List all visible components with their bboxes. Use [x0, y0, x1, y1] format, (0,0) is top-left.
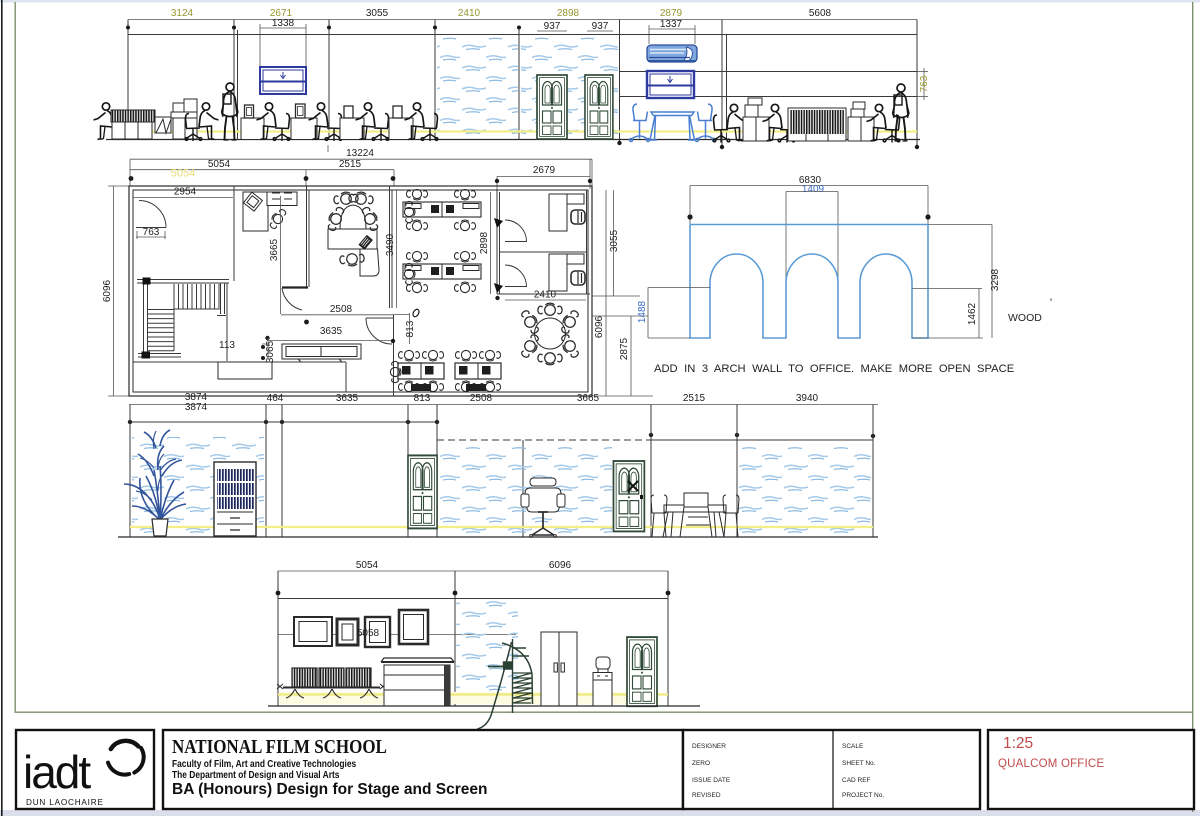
svg-text:3055: 3055: [366, 8, 389, 19]
svg-text:813: 813: [405, 320, 416, 337]
svg-text:SHEET No.: SHEET No.: [842, 760, 876, 767]
svg-text:3635: 3635: [320, 326, 343, 337]
svg-text:NATIONAL FILM SCHOOL: NATIONAL FILM SCHOOL: [172, 736, 387, 759]
svg-text:3065: 3065: [265, 340, 276, 363]
svg-text:1:25: 1:25: [1003, 735, 1033, 752]
svg-text:3298: 3298: [990, 268, 1001, 291]
svg-text:113: 113: [219, 340, 235, 351]
svg-text:3055: 3055: [609, 229, 620, 252]
svg-text:2410: 2410: [458, 8, 481, 19]
svg-text:2875: 2875: [619, 337, 630, 360]
svg-text:2508: 2508: [330, 304, 353, 315]
svg-text:3490: 3490: [385, 233, 396, 256]
svg-text:1338: 1338: [272, 18, 295, 29]
svg-text:5054: 5054: [356, 560, 379, 571]
svg-text:763: 763: [143, 227, 160, 238]
svg-text:5054: 5054: [171, 168, 195, 180]
svg-text:1337: 1337: [660, 19, 683, 30]
svg-text:5608: 5608: [809, 8, 832, 19]
svg-text:CAD REF: CAD REF: [842, 777, 871, 784]
svg-text:5054: 5054: [208, 159, 231, 170]
svg-text:1409: 1409: [802, 184, 825, 195]
svg-text:iadt: iadt: [23, 746, 91, 798]
svg-text:1488: 1488: [637, 300, 648, 323]
svg-text:3665: 3665: [577, 393, 600, 404]
svg-text:SCALE: SCALE: [842, 743, 864, 750]
svg-text:937: 937: [592, 21, 609, 32]
svg-text:5058: 5058: [357, 628, 380, 639]
svg-text:The Department of Design and V: The Department of Design and Visual Arts: [172, 769, 339, 781]
svg-text:6096: 6096: [549, 560, 572, 571]
svg-text:763: 763: [919, 75, 930, 92]
svg-text:QUALCOM OFFICE: QUALCOM OFFICE: [998, 758, 1104, 770]
svg-text:2898: 2898: [479, 231, 490, 254]
svg-text:6096: 6096: [102, 279, 113, 302]
svg-text:ISSUE DATE: ISSUE DATE: [692, 777, 731, 784]
svg-text:ADD IN 3 ARCH WALL TO OFFICE.: ADD IN 3 ARCH WALL TO OFFICE. MAKE MORE …: [654, 363, 1014, 375]
svg-text:937: 937: [544, 21, 561, 32]
svg-text:DESIGNER: DESIGNER: [692, 743, 726, 750]
svg-text:2879: 2879: [660, 8, 683, 19]
svg-text:3940: 3940: [796, 393, 819, 404]
svg-text:2515: 2515: [683, 393, 706, 404]
svg-text:3665: 3665: [269, 238, 280, 261]
svg-text:13224: 13224: [346, 148, 374, 159]
svg-text:2954: 2954: [174, 187, 197, 198]
svg-text:2508: 2508: [470, 393, 493, 404]
svg-text:WOOD: WOOD: [1008, 312, 1042, 324]
svg-text:DUN LAOCHAIRE: DUN LAOCHAIRE: [26, 798, 104, 807]
svg-text:2898: 2898: [557, 8, 580, 19]
svg-text:BA (Honours) Design for Stage: BA (Honours) Design for Stage and Screen: [172, 781, 488, 798]
svg-text:6096: 6096: [594, 315, 605, 338]
svg-text:REVISED: REVISED: [692, 792, 721, 799]
svg-text:3874: 3874: [185, 402, 208, 413]
svg-text:3124: 3124: [171, 8, 194, 19]
svg-text:PROJECT No.: PROJECT No.: [842, 792, 884, 799]
svg-text:': ': [1050, 297, 1052, 309]
svg-text:ZERO: ZERO: [692, 760, 710, 767]
svg-text:2515: 2515: [339, 159, 362, 170]
svg-text:813: 813: [414, 393, 431, 404]
svg-text:1462: 1462: [967, 302, 978, 325]
svg-text:464: 464: [267, 393, 284, 404]
svg-text:2679: 2679: [533, 165, 556, 176]
svg-text:3635: 3635: [336, 393, 359, 404]
